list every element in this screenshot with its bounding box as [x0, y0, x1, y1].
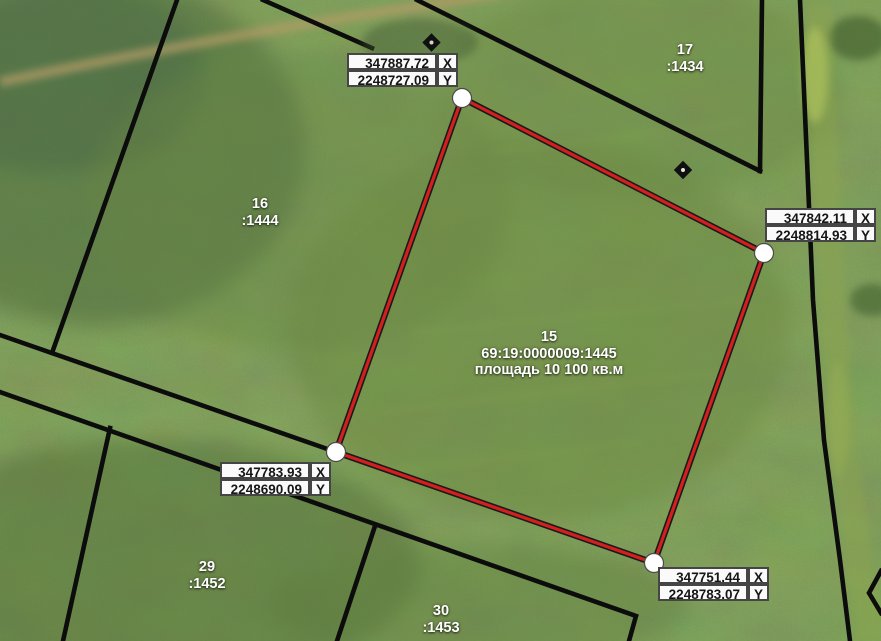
- aerial-background: [0, 0, 881, 641]
- parcel-number: 16: [241, 196, 278, 213]
- parcel-suffix: :1434: [666, 59, 703, 76]
- coord-y-value: 2248783.07: [658, 584, 748, 601]
- parcel-area: площадь 10 100 кв.м: [475, 362, 624, 379]
- coord-x-axis-label: X: [437, 53, 458, 70]
- parcel-suffix: :1444: [241, 213, 278, 230]
- parcel-label-16: 16 :1444: [241, 196, 278, 229]
- vertex-marker-icon[interactable]: [453, 89, 472, 108]
- parcel-number: 17: [666, 42, 703, 59]
- map-canvas[interactable]: 347887.72 X 2248727.09 Y 347842.11 X 224…: [0, 0, 881, 641]
- parcel-suffix: :1453: [422, 620, 459, 637]
- coord-x-axis-label: X: [748, 567, 769, 584]
- parcel-label-17: 17 :1434: [666, 42, 703, 75]
- parcel-label-30: 30 :1453: [422, 603, 459, 636]
- coord-x-value: 347783.93: [220, 462, 310, 479]
- coord-y-value: 2248727.09: [347, 70, 437, 87]
- parcel-label-29: 29 :1452: [188, 559, 225, 592]
- coord-y-axis-label: Y: [855, 225, 876, 242]
- coord-x-value: 347842.11: [765, 208, 855, 225]
- coord-y-axis-label: Y: [310, 479, 331, 496]
- parcel-number: 29: [188, 559, 225, 576]
- vertex-marker-icon[interactable]: [327, 443, 346, 462]
- selected-parcel-label: 15 69:19:0000009:1445 площадь 10 100 кв.…: [475, 329, 624, 379]
- coord-y-axis-label: Y: [437, 70, 458, 87]
- parcel-suffix: :1452: [188, 576, 225, 593]
- coord-x-axis-label: X: [310, 462, 331, 479]
- coordinate-table-left: 347783.93 X 2248690.09 Y: [220, 462, 331, 496]
- parcel-number: 15: [475, 329, 624, 346]
- coord-y-axis-label: Y: [748, 584, 769, 601]
- vertex-marker-icon[interactable]: [755, 244, 774, 263]
- coord-y-value: 2248814.93: [765, 225, 855, 242]
- coord-x-value: 347887.72: [347, 53, 437, 70]
- parcel-number: 30: [422, 603, 459, 620]
- coordinate-table-bottom: 347751.44 X 2248783.07 Y: [658, 567, 769, 601]
- parcel-cadastral-number: 69:19:0000009:1445: [475, 346, 624, 363]
- coordinate-table-top: 347887.72 X 2248727.09 Y: [347, 53, 458, 87]
- coord-y-value: 2248690.09: [220, 479, 310, 496]
- coord-x-axis-label: X: [855, 208, 876, 225]
- coord-x-value: 347751.44: [658, 567, 748, 584]
- coordinate-table-right: 347842.11 X 2248814.93 Y: [765, 208, 876, 242]
